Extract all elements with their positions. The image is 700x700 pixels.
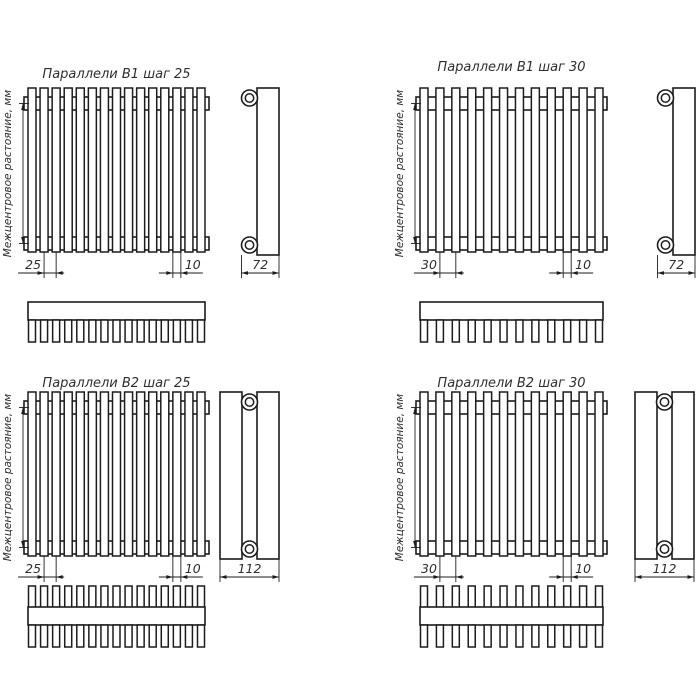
front-view	[416, 392, 607, 556]
radiator-tube	[420, 392, 428, 556]
tube-section-front	[149, 625, 156, 647]
diagram-title: Параллели В1 шаг 25	[42, 67, 190, 82]
tube-section-front	[113, 625, 120, 647]
top-view	[28, 302, 205, 342]
tube-section-back	[29, 586, 36, 608]
tube-section-front	[516, 625, 523, 647]
dimension-tube-width: 10	[549, 556, 593, 582]
tube-section-back	[89, 586, 96, 608]
arrowhead-icon	[56, 575, 63, 579]
side-panel-front	[672, 392, 694, 559]
tube-section	[198, 320, 205, 342]
arrowhead-icon	[689, 271, 696, 275]
radiator-tube	[88, 392, 96, 556]
arrowhead-icon	[220, 575, 227, 579]
dimension-depth: 112	[635, 559, 694, 582]
side-panel-back	[220, 392, 242, 559]
radiator-tube	[420, 88, 428, 252]
tube-width-dimension-label: 10	[575, 561, 591, 576]
dimension-tube-width: 10	[549, 252, 593, 278]
connection-port-inner	[245, 545, 253, 553]
tube-section-back	[77, 586, 84, 608]
tube-section	[173, 320, 180, 342]
tube-width-dimension-label: 10	[185, 561, 201, 576]
dimension-tube-width: 10	[159, 556, 203, 582]
tube-section-front	[185, 625, 192, 647]
tube-section-back	[137, 586, 144, 608]
dimension-depth: 72	[242, 255, 280, 278]
tube-section-front	[596, 625, 603, 647]
arrowhead-icon	[273, 575, 280, 579]
front-view	[24, 88, 209, 252]
arrowhead-icon	[658, 271, 665, 275]
tube-section-back	[564, 586, 571, 608]
radiator-tube	[137, 88, 145, 252]
radiator-tube	[100, 88, 108, 252]
tube-section	[125, 320, 132, 342]
step-dimension-label: 25	[25, 561, 41, 576]
tube-section-front	[500, 625, 507, 647]
diagram-quadrant: Параллели В1 шаг 25Межцентровое растояни…	[2, 67, 279, 342]
diagram-title: Параллели В1 шаг 30	[437, 60, 585, 75]
radiator-tube	[64, 88, 72, 252]
connection-port-inner	[660, 398, 668, 406]
tube-section	[532, 320, 539, 342]
radiator-tube	[531, 88, 539, 252]
depth-dimension-label: 72	[252, 257, 268, 272]
top-view	[420, 302, 603, 342]
tube-section-back	[161, 586, 168, 608]
tube-section	[41, 320, 48, 342]
tube-section-back	[53, 586, 60, 608]
side-view	[658, 88, 696, 255]
tube-section-back	[596, 586, 603, 608]
radiator-tube	[579, 88, 587, 252]
front-view	[416, 88, 607, 252]
dimension-height: Межцентровое растояние, мм	[2, 90, 29, 258]
step-dimension-label: 30	[421, 257, 437, 272]
top-view-header	[28, 302, 205, 320]
side-view	[242, 88, 280, 255]
radiator-tube	[468, 88, 476, 252]
radiator-tube	[436, 392, 444, 556]
dimension-step: 25	[18, 252, 64, 278]
depth-dimension-label: 112	[653, 561, 677, 576]
connection-port-inner	[661, 241, 669, 249]
tube-section-front	[421, 625, 428, 647]
connection-port-inner	[660, 545, 668, 553]
tube-width-dimension-label: 10	[575, 257, 591, 272]
radiator-tube	[64, 392, 72, 556]
top-view-header	[420, 607, 603, 625]
radiator-tube	[531, 392, 539, 556]
tube-section-front	[198, 625, 205, 647]
radiator-tube	[197, 88, 205, 252]
tube-section-back	[516, 586, 523, 608]
radiator-tube	[113, 88, 121, 252]
tube-section-front	[564, 625, 571, 647]
drawing-canvas: Параллели В1 шаг 25Межцентровое растояни…	[0, 0, 700, 700]
arrowhead-icon	[557, 575, 564, 579]
tube-section	[29, 320, 36, 342]
tube-section-front	[65, 625, 72, 647]
tube-section-front	[137, 625, 144, 647]
tube-section	[65, 320, 72, 342]
radiator-tube	[468, 392, 476, 556]
connection-port-inner	[245, 241, 253, 249]
top-view	[420, 586, 603, 647]
tube-section-back	[113, 586, 120, 608]
tube-section	[484, 320, 491, 342]
dimension-height: Межцентровое растояние, мм	[394, 90, 421, 258]
tube-section-back	[65, 586, 72, 608]
tube-section-front	[436, 625, 443, 647]
depth-dimension-label: 112	[238, 561, 262, 576]
radiator-tube	[149, 88, 157, 252]
tube-section-front	[77, 625, 84, 647]
tube-section-front	[484, 625, 491, 647]
arrowhead-icon	[273, 271, 280, 275]
radiator-tube	[52, 392, 60, 556]
radiator-tube	[515, 392, 523, 556]
tube-section-front	[468, 625, 475, 647]
tube-section	[500, 320, 507, 342]
tube-section-back	[484, 586, 491, 608]
tube-section	[149, 320, 156, 342]
top-view-header	[420, 302, 603, 320]
radiator-tube	[40, 392, 48, 556]
tube-section	[113, 320, 120, 342]
dimension-height: Межцентровое растояние, мм	[2, 394, 29, 562]
radiator-tube	[500, 88, 508, 252]
tube-width-dimension-label: 10	[185, 257, 201, 272]
tube-section-back	[173, 586, 180, 608]
radiator-tube	[452, 392, 460, 556]
radiator-tube	[100, 392, 108, 556]
side-panel-back	[635, 392, 657, 559]
radiator-tube	[484, 392, 492, 556]
dimension-height: Межцентровое растояние, мм	[394, 394, 421, 562]
tube-section-front	[580, 625, 587, 647]
arrowhead-icon	[557, 271, 564, 275]
tube-section-back	[500, 586, 507, 608]
arrowhead-icon	[635, 575, 642, 579]
tube-section-back	[125, 586, 132, 608]
tube-section	[436, 320, 443, 342]
diagram-quadrant: Параллели В1 шаг 30Межцентровое растояни…	[394, 60, 695, 342]
tube-section-front	[161, 625, 168, 647]
radiator-tube	[76, 88, 84, 252]
diagram-title: Параллели В2 шаг 30	[437, 376, 585, 391]
tube-section-back	[532, 586, 539, 608]
tube-section	[580, 320, 587, 342]
radiator-tube	[161, 392, 169, 556]
radiator-tube	[185, 392, 193, 556]
radiator-tube	[125, 88, 133, 252]
radiator-tube	[515, 88, 523, 252]
tube-section	[468, 320, 475, 342]
tube-section	[548, 320, 555, 342]
radiator-tube	[52, 88, 60, 252]
tube-section	[516, 320, 523, 342]
radiator-tube	[579, 392, 587, 556]
tube-section-front	[41, 625, 48, 647]
side-panel-front	[257, 392, 279, 559]
tube-section	[596, 320, 603, 342]
dimension-step: 30	[414, 556, 464, 582]
depth-dimension-label: 72	[668, 257, 684, 272]
diagram-title: Параллели В2 шаг 25	[42, 376, 190, 391]
radiator-tube	[500, 392, 508, 556]
tube-section	[421, 320, 428, 342]
technical-drawing: Параллели В1 шаг 25Межцентровое растояни…	[0, 0, 700, 700]
radiator-tube	[563, 88, 571, 252]
tube-section	[89, 320, 96, 342]
radiator-tube	[161, 88, 169, 252]
tube-section	[137, 320, 144, 342]
tube-section-back	[198, 586, 205, 608]
dimension-depth: 72	[658, 255, 696, 278]
arrowhead-icon	[456, 575, 463, 579]
tube-section-back	[580, 586, 587, 608]
tube-section	[101, 320, 108, 342]
radiator-tube	[28, 392, 36, 556]
tube-section-front	[452, 625, 459, 647]
arrowhead-icon	[56, 271, 63, 275]
step-dimension-label: 30	[421, 561, 437, 576]
radiator-tube	[125, 392, 133, 556]
axis-label: Межцентровое растояние, мм	[394, 90, 406, 258]
tube-section	[185, 320, 192, 342]
tube-section-back	[436, 586, 443, 608]
tube-section	[564, 320, 571, 342]
connection-port-inner	[661, 94, 669, 102]
tube-section-back	[149, 586, 156, 608]
radiator-tube	[137, 392, 145, 556]
radiator-tube	[436, 88, 444, 252]
tube-section	[53, 320, 60, 342]
diagram-quadrant: Параллели В2 шаг 30Межцентровое растояни…	[394, 376, 694, 647]
tube-section-front	[101, 625, 108, 647]
radiator-tube	[28, 88, 36, 252]
tube-section-front	[125, 625, 132, 647]
tube-section-front	[548, 625, 555, 647]
radiator-tube	[185, 88, 193, 252]
radiator-tube	[76, 392, 84, 556]
tube-section	[161, 320, 168, 342]
tube-section-front	[53, 625, 60, 647]
dimension-depth: 112	[220, 559, 279, 582]
side-view	[220, 392, 279, 559]
radiator-tube	[173, 88, 181, 252]
side-panel-front	[673, 88, 695, 255]
radiator-tube	[113, 392, 121, 556]
radiator-tube	[484, 88, 492, 252]
tube-section-back	[41, 586, 48, 608]
connection-port-inner	[245, 94, 253, 102]
arrowhead-icon	[456, 271, 463, 275]
tube-section-back	[548, 586, 555, 608]
front-view	[24, 392, 209, 556]
radiator-tube	[40, 88, 48, 252]
axis-label: Межцентровое растояние, мм	[2, 394, 14, 562]
arrowhead-icon	[166, 575, 173, 579]
tube-section-back	[468, 586, 475, 608]
radiator-tube	[547, 88, 555, 252]
radiator-tube	[452, 88, 460, 252]
axis-label: Межцентровое растояние, мм	[394, 394, 406, 562]
side-view	[635, 392, 694, 559]
arrowhead-icon	[166, 271, 173, 275]
radiator-tube	[149, 392, 157, 556]
radiator-tube	[88, 88, 96, 252]
top-view-header	[28, 607, 205, 625]
arrowhead-icon	[242, 271, 249, 275]
dimension-step: 30	[414, 252, 464, 278]
tube-section-front	[173, 625, 180, 647]
radiator-tube	[197, 392, 205, 556]
dimension-tube-width: 10	[159, 252, 203, 278]
tube-section	[452, 320, 459, 342]
tube-section-back	[185, 586, 192, 608]
connection-port-inner	[245, 398, 253, 406]
radiator-tube	[173, 392, 181, 556]
tube-section-back	[101, 586, 108, 608]
axis-label: Межцентровое растояние, мм	[2, 90, 14, 258]
tube-section-front	[89, 625, 96, 647]
side-panel-front	[257, 88, 279, 255]
diagram-quadrant: Параллели В2 шаг 25Межцентровое растояни…	[2, 376, 279, 647]
radiator-tube	[595, 392, 603, 556]
tube-section-back	[452, 586, 459, 608]
radiator-tube	[595, 88, 603, 252]
radiator-tube	[547, 392, 555, 556]
dimension-step: 25	[18, 556, 64, 582]
top-view	[28, 586, 205, 647]
tube-section-front	[532, 625, 539, 647]
step-dimension-label: 25	[25, 257, 41, 272]
tube-section	[77, 320, 84, 342]
tube-section-back	[421, 586, 428, 608]
radiator-tube	[563, 392, 571, 556]
tube-section-front	[29, 625, 36, 647]
arrowhead-icon	[688, 575, 695, 579]
